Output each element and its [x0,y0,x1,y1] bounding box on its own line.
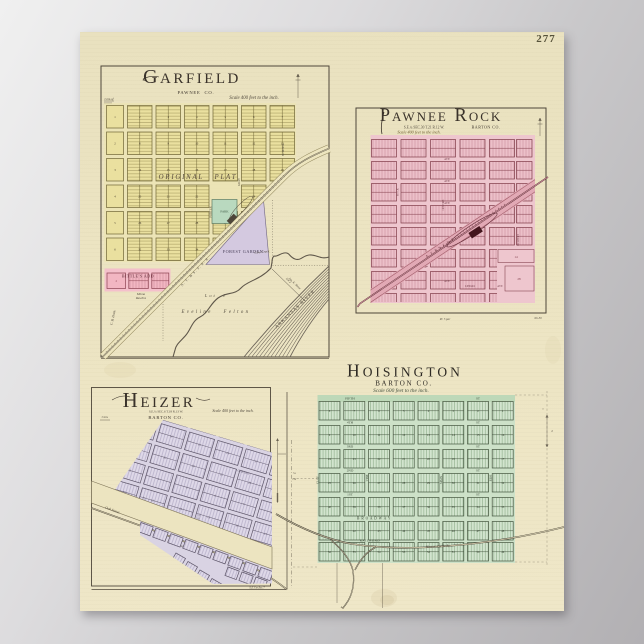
svg-text:32: 32 [138,247,142,251]
svg-text:31: 31 [281,221,285,225]
svg-text:51: 51 [452,550,456,554]
svg-text:33: 33 [501,505,505,509]
svg-text:Scale 400 feet to the inch.: Scale 400 feet to the inch. [212,408,253,413]
svg-text:Scale 600 feet to the inch.: Scale 600 feet to the inch. [373,387,429,394]
svg-text:13: 13 [159,571,163,576]
svg-text:No.30: No.30 [533,316,542,320]
svg-text:42: 42 [353,529,357,533]
svg-text:Cem.: Cem. [102,415,109,419]
svg-text:10: 10 [65,473,69,478]
svg-text:8: 8 [261,438,264,442]
svg-text:B R O A D W A Y: B R O A D W A Y [357,517,391,521]
svg-text:LINDAS: LINDAS [465,285,476,288]
svg-text:31: 31 [477,481,481,485]
svg-text:AVE: AVE [444,279,450,283]
svg-text:14: 14 [138,168,142,172]
svg-text:34: 34 [477,505,481,509]
svg-text:15: 15 [477,433,481,437]
svg-text:21: 21 [167,194,171,198]
svg-text:2: 2 [110,533,113,537]
svg-text:36: 36 [427,505,431,509]
svg-text:11: 11 [103,554,107,559]
svg-text:37: 37 [281,247,285,251]
svg-text:23: 23 [353,457,357,461]
svg-text:12: 12 [131,562,135,567]
svg-text:GRAY: GRAY [237,177,241,186]
svg-text:6: 6 [205,421,208,425]
svg-text:10: 10 [75,545,79,550]
svg-text:HEIZER: HEIZER [123,388,196,412]
svg-text:2: 2 [101,460,104,464]
svg-text:¼: ¼ [293,471,296,475]
svg-text:53: 53 [402,550,406,554]
svg-text:49: 49 [501,550,505,554]
svg-text:SUMNER: SUMNER [281,144,285,157]
svg-text:ARKANSAS RIVER: ARKANSAS RIVER [274,288,316,329]
svg-text:2: 2 [551,429,553,433]
svg-text:CENTRE: CENTRE [442,199,445,210]
svg-text:CLAY: CLAY [316,475,320,484]
svg-text:26: 26 [138,221,142,225]
svg-text:RAILROAD: RAILROAD [360,539,381,543]
svg-text:ROCK: ROCK [397,188,400,196]
svg-text:BARTON CO.: BARTON CO. [472,125,501,130]
svg-text:50: 50 [477,550,481,554]
svg-text:25: 25 [281,194,285,198]
svg-text:3: 3 [138,541,141,545]
svg-text:11: 11 [84,409,88,414]
svg-text:ELM: ELM [490,475,493,481]
svg-text:55: 55 [353,550,357,554]
svg-text:12: 12 [252,141,256,145]
svg-text:20: 20 [138,194,142,198]
svg-text:41: 41 [328,529,332,533]
svg-text:8: 8 [270,510,273,514]
svg-text:14: 14 [452,433,456,437]
svg-text:MAIN: MAIN [439,475,443,484]
svg-text:40: 40 [328,505,332,509]
svg-text:15: 15 [167,168,171,172]
svg-text:7: 7 [233,430,236,434]
svg-text:C. B. Hoak: C. B. Hoak [109,310,116,326]
svg-text:AVE: AVE [497,285,503,288]
svg-text:16: 16 [244,596,248,601]
svg-text:13: 13 [427,433,431,437]
svg-text:Cem.of: Cem.of [104,97,114,101]
svg-text:37: 37 [402,505,406,509]
svg-text:VINE: VINE [366,474,369,481]
svg-text:34: 34 [195,247,199,251]
svg-text:38: 38 [378,505,382,509]
svg-text:3RD: 3RD [347,445,354,449]
svg-text:48: 48 [501,529,505,533]
svg-text:20: 20 [78,430,82,435]
svg-text:43: 43 [378,529,382,533]
svg-text:PARK: PARK [220,210,229,214]
svg-text:47: 47 [477,529,481,533]
svg-text:PAWNEE ROCK: PAWNEE ROCK [380,106,503,126]
svg-text:2ND: 2ND [347,469,354,473]
svg-text:AVE: AVE [444,179,450,183]
svg-text:S.E.¼ SEC.6 T.18 R.13 W.: S.E.¼ SEC.6 T.18 R.13 W. [149,410,184,414]
svg-text:18: 18 [282,467,286,472]
svg-text:56: 56 [328,550,332,554]
svg-text:22: 22 [378,457,382,461]
svg-text:18: 18 [477,457,481,461]
svg-text:19: 19 [50,422,54,427]
svg-text:HOISINGTON: HOISINGTON [347,361,463,381]
svg-text:17: 17 [224,168,228,172]
svg-text:39: 39 [353,505,357,509]
svg-text:12: 12 [402,433,406,437]
svg-text:44: 44 [402,529,406,533]
svg-text:21: 21 [402,457,406,461]
svg-text:25: 25 [328,481,332,485]
svg-text:S.E.Cor.Sec.7: S.E.Cor.Sec.7 [249,587,265,590]
svg-text:26: 26 [353,481,357,485]
svg-text:AVE: AVE [444,157,450,161]
svg-text:277: 277 [536,33,556,45]
svg-text:54: 54 [378,550,382,554]
svg-text:30: 30 [452,481,456,485]
svg-text:BARTON CO.: BARTON CO. [148,415,183,420]
svg-text:24: 24 [328,457,332,461]
svg-text:29: 29 [427,481,431,485]
svg-text:9: 9 [289,446,292,450]
svg-text:PAWNEE CO.: PAWNEE CO. [178,90,215,95]
svg-text:BITTLE'S ADD: BITTLE'S ADD [122,274,154,279]
svg-text:1ST: 1ST [347,493,354,497]
svg-text:27: 27 [24,507,28,512]
svg-text:HULBERT: HULBERT [517,234,520,246]
svg-text:4TH: 4TH [347,421,354,425]
svg-text:28: 28 [402,481,406,485]
svg-text:18: 18 [252,168,256,172]
svg-text:9: 9 [38,465,41,469]
svg-text:Scale 400 feet to the inch.: Scale 400 feet to the inch. [229,96,279,101]
svg-text:27: 27 [276,489,280,494]
svg-text:Lot 1: Lot 1 [204,293,227,298]
svg-text:AVE: AVE [444,201,450,205]
svg-text:14: 14 [188,579,192,584]
svg-text:28: 28 [517,277,521,281]
svg-text:24: 24 [252,194,256,198]
svg-text:17: 17 [501,457,505,461]
svg-text:33: 33 [167,247,171,251]
svg-text:BARTON CO.: BARTON CO. [375,380,432,388]
svg-text:11: 11 [378,433,381,437]
svg-text:ORIGINAL PLAT: ORIGINAL PLAT [159,174,238,181]
svg-text:10: 10 [353,433,357,437]
svg-text:16: 16 [501,433,505,437]
svg-text:Scale 400 feet to the inch.: Scale 400 feet to the inch. [397,130,440,135]
svg-text:27: 27 [378,481,382,485]
svg-text:14: 14 [514,255,518,259]
svg-text:46: 46 [452,529,456,533]
svg-text:28: 28 [195,221,199,225]
svg-text:19: 19 [59,494,63,499]
svg-text:20: 20 [427,457,431,461]
svg-text:19: 19 [452,457,456,461]
svg-text:1: 1 [63,379,66,383]
svg-text:10: 10 [195,141,199,145]
svg-text:×: × [542,407,544,411]
svg-text:Rawlins: Rawlins [135,296,147,300]
svg-text:32: 32 [501,481,505,485]
svg-text:21: 21 [106,439,110,444]
svg-text:18: 18 [31,486,35,491]
svg-text:16: 16 [195,168,199,172]
svg-text:9: 9 [47,537,50,541]
svg-text:11: 11 [224,141,227,145]
svg-text:10: 10 [56,400,60,405]
svg-text:0: 0 [44,443,47,447]
svg-text:Eveline Felton: Eveline Felton [181,310,251,315]
svg-text:1: 1 [72,452,75,456]
svg-text:45: 45 [427,529,431,533]
svg-text:22: 22 [135,447,139,452]
svg-text:0: 0 [53,516,56,520]
svg-text:52: 52 [427,550,431,554]
svg-text:27: 27 [167,221,171,225]
svg-text:FIFTH: FIFTH [345,397,355,401]
svg-text:12: 12 [113,417,117,422]
svg-text:Pl. 5 par: Pl. 5 par [439,317,451,321]
svg-text:22: 22 [195,194,199,198]
svg-text:1: 1 [82,524,85,528]
svg-text:35: 35 [452,505,456,509]
svg-text:8: 8 [19,529,22,533]
svg-text:13: 13 [141,426,145,431]
